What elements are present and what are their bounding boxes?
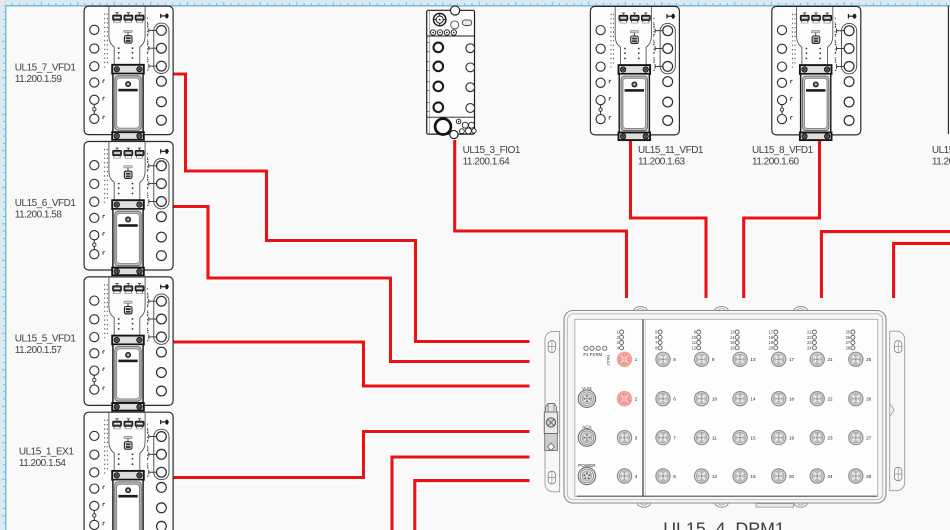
svg-text:9: 9 (712, 357, 715, 362)
svg-text:11.200.1.57: 11.200.1.57 (15, 345, 63, 356)
svg-text:18: 18 (789, 397, 795, 402)
svg-text:27: 27 (866, 435, 872, 440)
svg-text:20: 20 (769, 345, 774, 350)
svg-text:24: 24 (807, 345, 812, 350)
svg-text:3: 3 (635, 435, 638, 440)
svg-text:2: 2 (635, 397, 638, 402)
svg-text:11.200.1.54: 11.200.1.54 (19, 458, 67, 469)
svg-text:UL15_1_EX1: UL15_1_EX1 (19, 447, 74, 458)
svg-text:UL15_5_VFD1: UL15_5_VFD1 (15, 333, 77, 344)
svg-text:11.200.1.60: 11.200.1.60 (752, 157, 800, 168)
svg-text:16: 16 (750, 474, 756, 479)
svg-text:11.200.1.58: 11.200.1.58 (15, 210, 63, 221)
svg-text:25: 25 (866, 357, 872, 362)
svg-text:21: 21 (828, 357, 834, 362)
svg-text:20: 20 (789, 474, 795, 479)
svg-text:6: 6 (673, 397, 676, 402)
svg-text:UL15_11_VFD1: UL15_11_VFD1 (638, 145, 704, 156)
svg-text:11.200.1.63: 11.200.1.63 (638, 157, 686, 168)
svg-text:FAULT: FAULT (606, 355, 610, 367)
svg-text:25: 25 (846, 330, 851, 335)
svg-text:13: 13 (750, 357, 756, 362)
svg-text:26: 26 (866, 397, 872, 402)
svg-text:17: 17 (769, 330, 774, 335)
svg-text:19: 19 (769, 340, 774, 345)
svg-text:UL15_10_VFD: UL15_10_VFD (932, 145, 950, 156)
svg-text:23: 23 (828, 435, 834, 440)
svg-text:UL15_8_VFD1: UL15_8_VFD1 (752, 145, 814, 156)
svg-text:10: 10 (712, 397, 718, 402)
svg-text:16: 16 (730, 345, 735, 350)
svg-text:12: 12 (691, 345, 696, 350)
svg-text:11.200.1.6: 11.200.1.6 (932, 157, 950, 168)
svg-text:11: 11 (692, 340, 697, 345)
svg-text:11: 11 (712, 435, 717, 440)
svg-text:27: 27 (846, 340, 851, 345)
svg-text:1: 1 (635, 357, 638, 362)
svg-text:5: 5 (673, 357, 676, 362)
svg-text:15: 15 (730, 340, 735, 345)
svg-text:19: 19 (789, 435, 795, 440)
svg-text:23: 23 (807, 340, 812, 345)
svg-text:P1: P1 (583, 352, 589, 357)
svg-text:UL15_7_VFD1: UL15_7_VFD1 (15, 63, 77, 74)
svg-text:UL15_6_VFD1: UL15_6_VFD1 (15, 198, 77, 209)
svg-text:12: 12 (712, 474, 718, 479)
svg-text:11.200.1.59: 11.200.1.59 (15, 74, 63, 85)
svg-text:21: 21 (807, 330, 812, 335)
svg-text:22: 22 (828, 397, 834, 402)
svg-text:8: 8 (673, 474, 676, 479)
svg-text:11.200.1.64: 11.200.1.64 (463, 157, 511, 168)
svg-text:28: 28 (846, 345, 851, 350)
svg-text:UL15_3_FIO1: UL15_3_FIO1 (463, 145, 521, 156)
svg-text:24: 24 (828, 474, 834, 479)
svg-text:RM: RM (595, 352, 602, 357)
svg-text:7: 7 (673, 435, 676, 440)
svg-text:UL15_4_DPM1: UL15_4_DPM1 (663, 519, 785, 530)
svg-text:4: 4 (635, 474, 638, 479)
svg-text:28: 28 (866, 474, 872, 479)
svg-text:17: 17 (789, 357, 795, 362)
svg-text:14: 14 (750, 397, 756, 402)
svg-text:13: 13 (730, 330, 735, 335)
svg-text:15: 15 (750, 435, 756, 440)
